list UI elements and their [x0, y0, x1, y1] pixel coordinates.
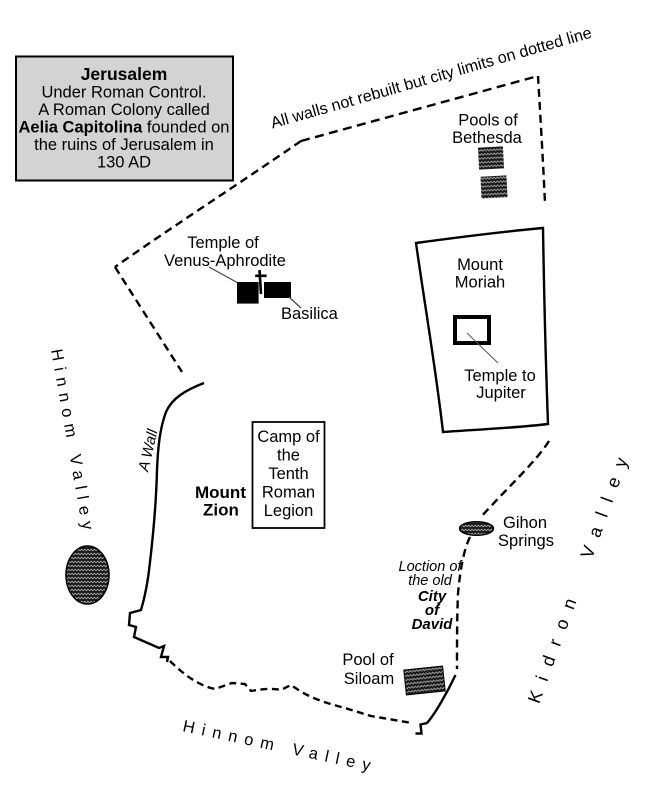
svg-text:Siloam: Siloam: [344, 670, 394, 688]
svg-text:the old: the old: [408, 573, 452, 589]
svg-text:Springs: Springs: [498, 532, 554, 550]
svg-text:Roman: Roman: [262, 484, 315, 502]
svg-text:David: David: [412, 616, 454, 633]
svg-text:Bethesda: Bethesda: [452, 129, 523, 147]
svg-text:the ruins of Jerusalem in: the ruins of Jerusalem in: [34, 136, 214, 154]
svg-text:Pool of: Pool of: [342, 651, 394, 669]
svg-text:the: the: [277, 447, 300, 465]
svg-text:Temple of: Temple of: [187, 234, 259, 252]
svg-text:Mount: Mount: [195, 483, 246, 502]
svg-text:130 AD: 130 AD: [97, 154, 151, 172]
svg-text:Basilica: Basilica: [281, 305, 339, 323]
svg-text:Camp of: Camp of: [257, 428, 320, 446]
svg-text:Jupiter: Jupiter: [476, 384, 526, 402]
svg-text:A Roman Colony called: A Roman Colony called: [38, 101, 210, 119]
svg-text:Venus-Aphrodite: Venus-Aphrodite: [164, 252, 286, 270]
svg-text:Moriah: Moriah: [455, 274, 505, 292]
svg-text:Legion: Legion: [264, 502, 314, 520]
svg-text:Gihon: Gihon: [503, 514, 547, 532]
svg-text:Tenth: Tenth: [268, 465, 308, 483]
svg-text:Jerusalem: Jerusalem: [81, 64, 168, 84]
svg-text:Mount: Mount: [457, 256, 503, 274]
svg-text:Aelia Capitolina founded on: Aelia Capitolina founded on: [19, 119, 230, 137]
svg-text:Zion: Zion: [203, 501, 239, 520]
svg-text:Temple to: Temple to: [464, 367, 536, 385]
svg-text:Under Roman Control.: Under Roman Control.: [41, 84, 206, 102]
svg-text:Pools of: Pools of: [458, 112, 518, 130]
